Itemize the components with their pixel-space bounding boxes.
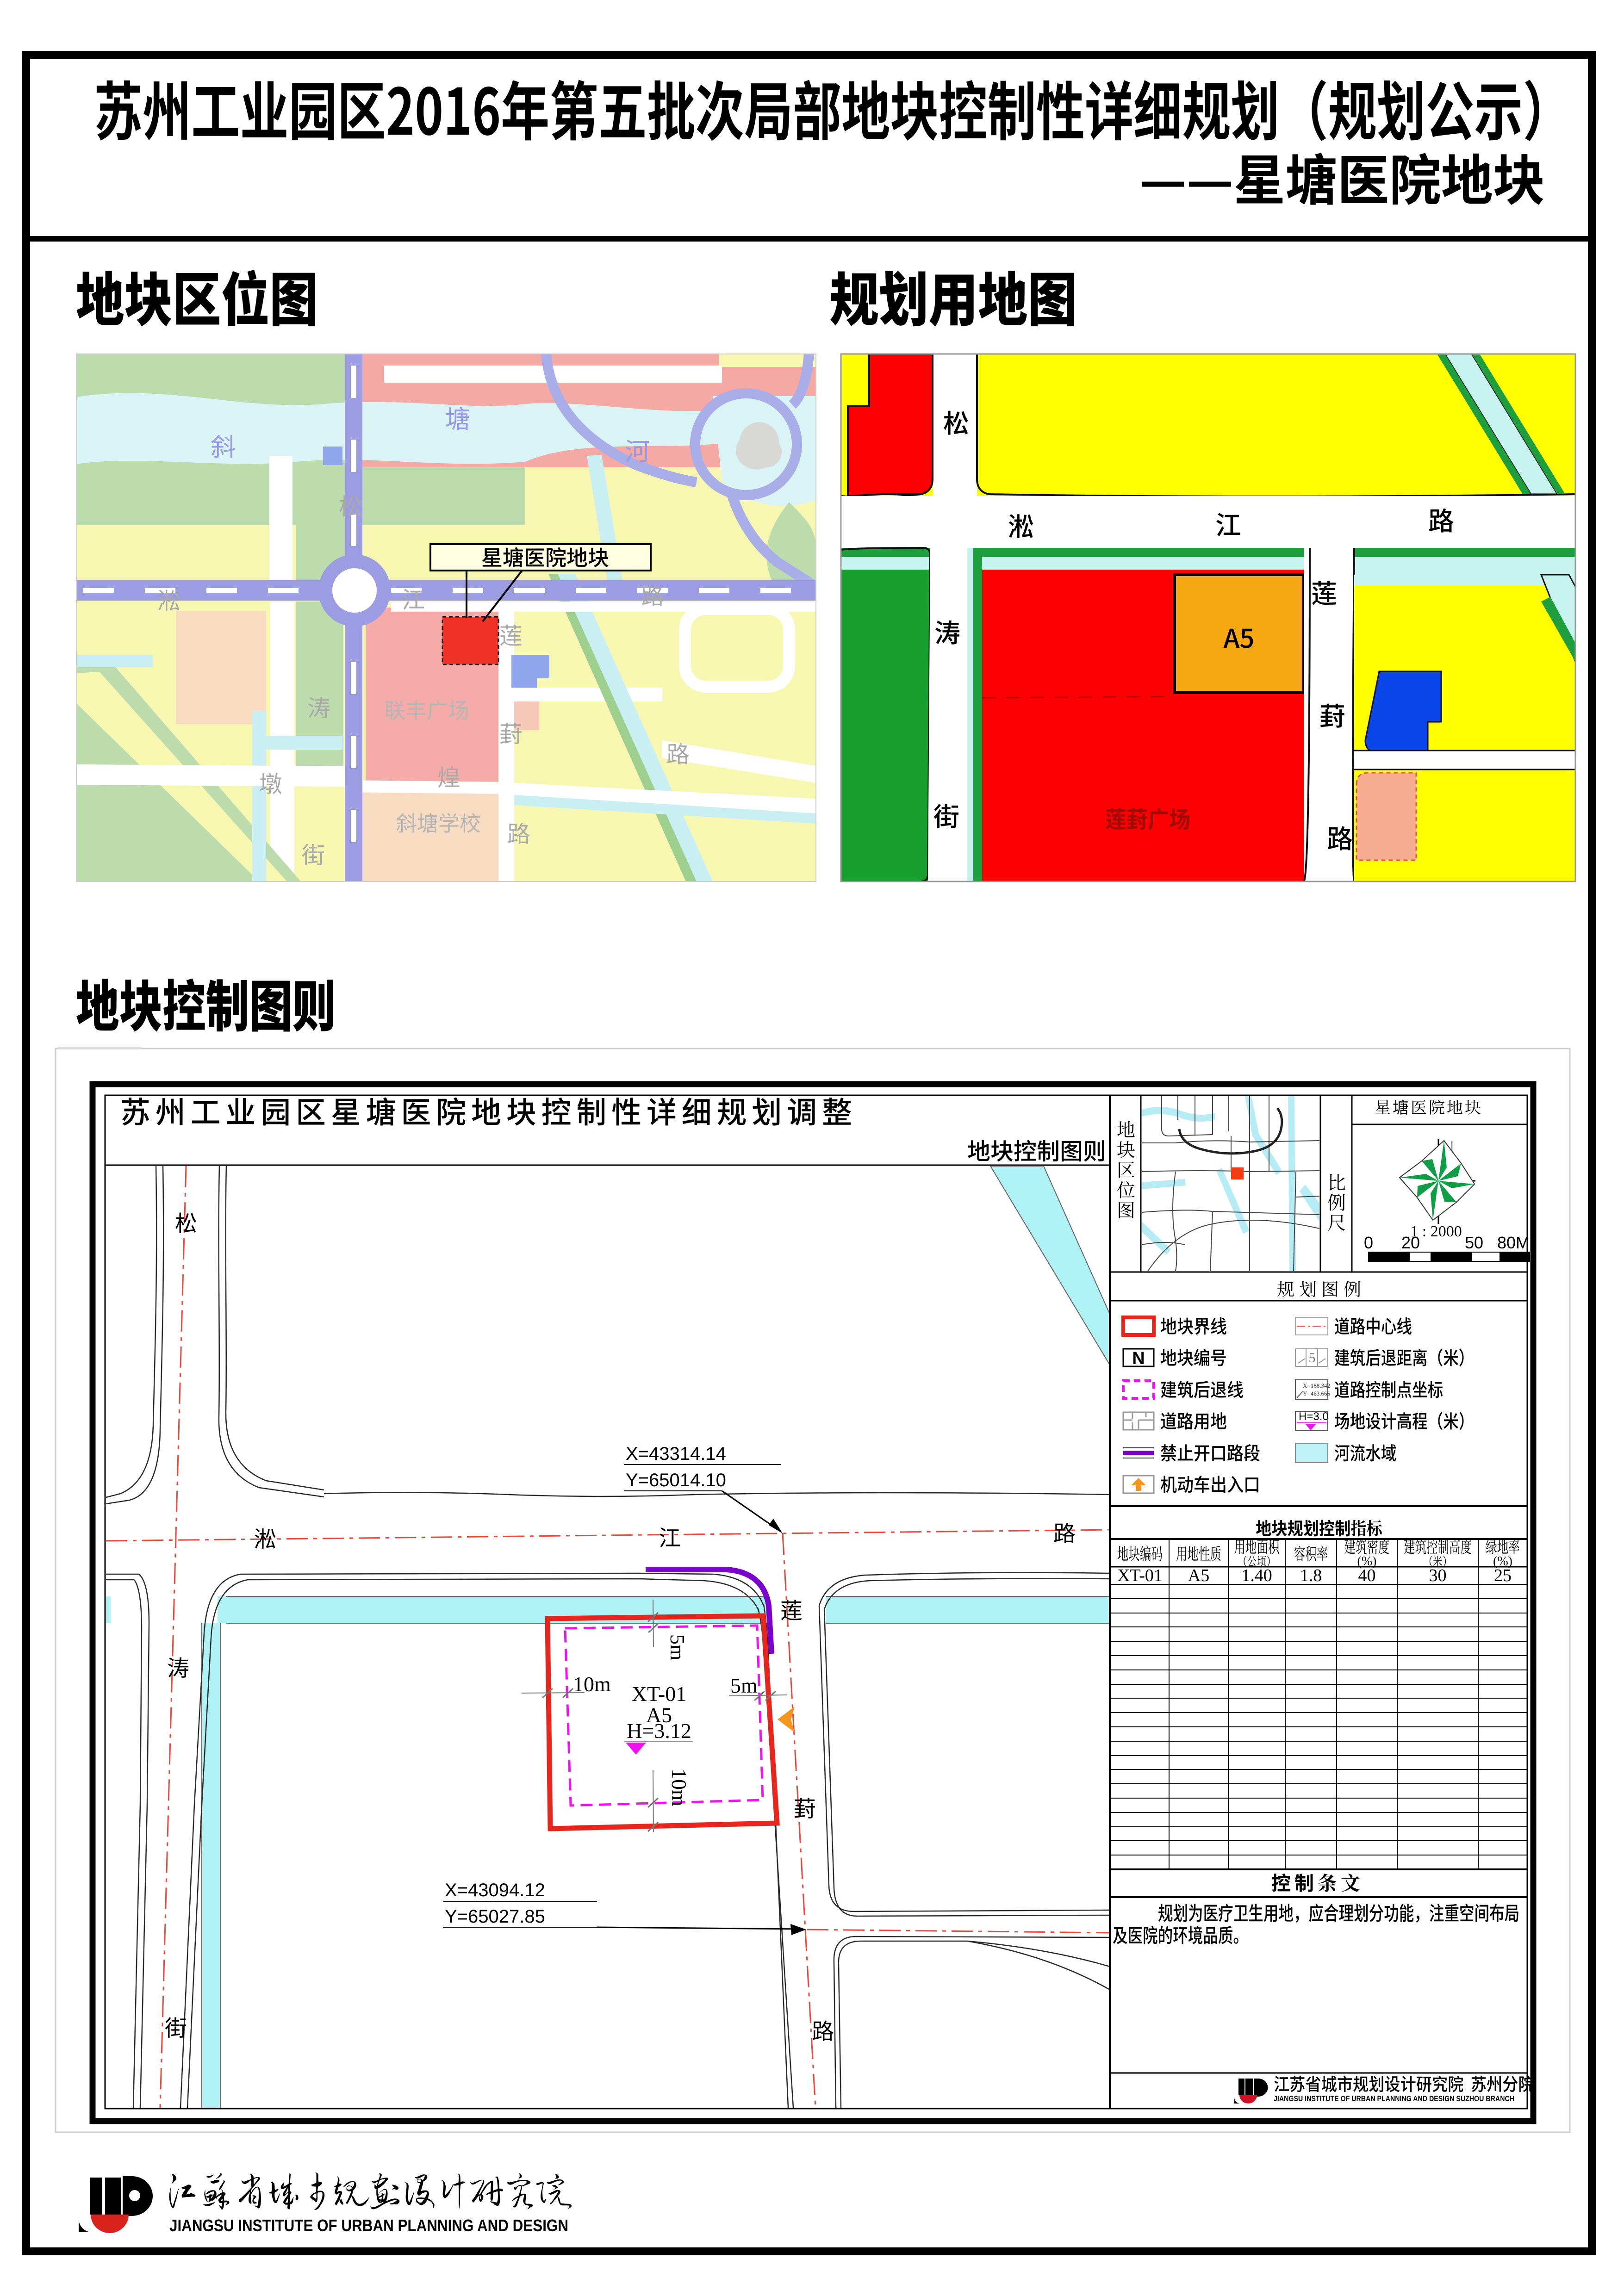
svg-text:1.8: 1.8 (1300, 1566, 1322, 1585)
svg-text:JIANGSU INSTITUTE OF URBAN PLA: JIANGSU INSTITUTE OF URBAN PLANNING AND … (1274, 2094, 1514, 2103)
svg-text:N: N (1132, 1349, 1145, 1368)
svg-text:Y=65027.85: Y=65027.85 (445, 1906, 545, 1927)
svg-text:Y=463.666: Y=463.666 (1303, 1390, 1330, 1397)
svg-text:10m: 10m (667, 1769, 691, 1806)
svg-text:1.40: 1.40 (1241, 1566, 1272, 1585)
svg-text:XT-01: XT-01 (1117, 1566, 1163, 1585)
svg-text:Y=65014.10: Y=65014.10 (626, 1470, 726, 1490)
svg-text:H=3.0: H=3.0 (1299, 1410, 1329, 1423)
svg-text:5m: 5m (666, 1634, 689, 1660)
svg-text:X=43094.12: X=43094.12 (445, 1880, 545, 1900)
svg-text:25: 25 (1494, 1566, 1512, 1585)
svg-text:X=43314.14: X=43314.14 (626, 1444, 726, 1464)
svg-text:5m: 5m (730, 1674, 758, 1697)
svg-text:50: 50 (1465, 1233, 1483, 1252)
svg-text:20: 20 (1401, 1233, 1420, 1252)
svg-text:X=188.342: X=188.342 (1303, 1382, 1330, 1389)
svg-text:JIANGSU INSTITUTE OF URBAN PLA: JIANGSU INSTITUTE OF URBAN PLANNING AND … (169, 2216, 568, 2235)
svg-text:80M: 80M (1497, 1233, 1530, 1252)
svg-text:0: 0 (1364, 1233, 1373, 1252)
svg-text:H=3.12: H=3.12 (627, 1719, 691, 1743)
svg-text:30: 30 (1429, 1566, 1447, 1585)
svg-text:A5: A5 (1188, 1566, 1209, 1585)
svg-text:XT-01: XT-01 (632, 1682, 686, 1706)
svg-text:10m: 10m (573, 1672, 611, 1696)
svg-text:5: 5 (1309, 1350, 1316, 1365)
svg-text:40: 40 (1358, 1566, 1376, 1585)
